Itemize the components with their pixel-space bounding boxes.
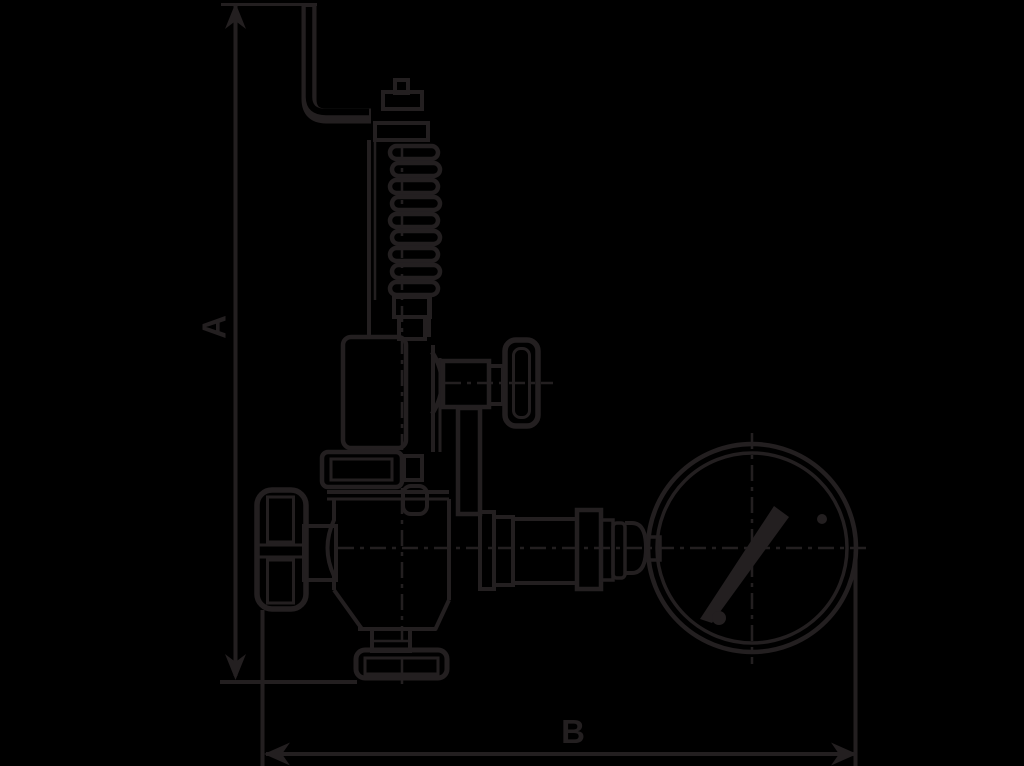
valve-technical-drawing: A B xyxy=(0,0,1024,766)
gauge-pivot-dot xyxy=(712,611,726,625)
dimension-a-label: A xyxy=(196,315,233,339)
gauge-marker-dot xyxy=(817,514,827,524)
dimension-b-label: B xyxy=(561,713,585,750)
